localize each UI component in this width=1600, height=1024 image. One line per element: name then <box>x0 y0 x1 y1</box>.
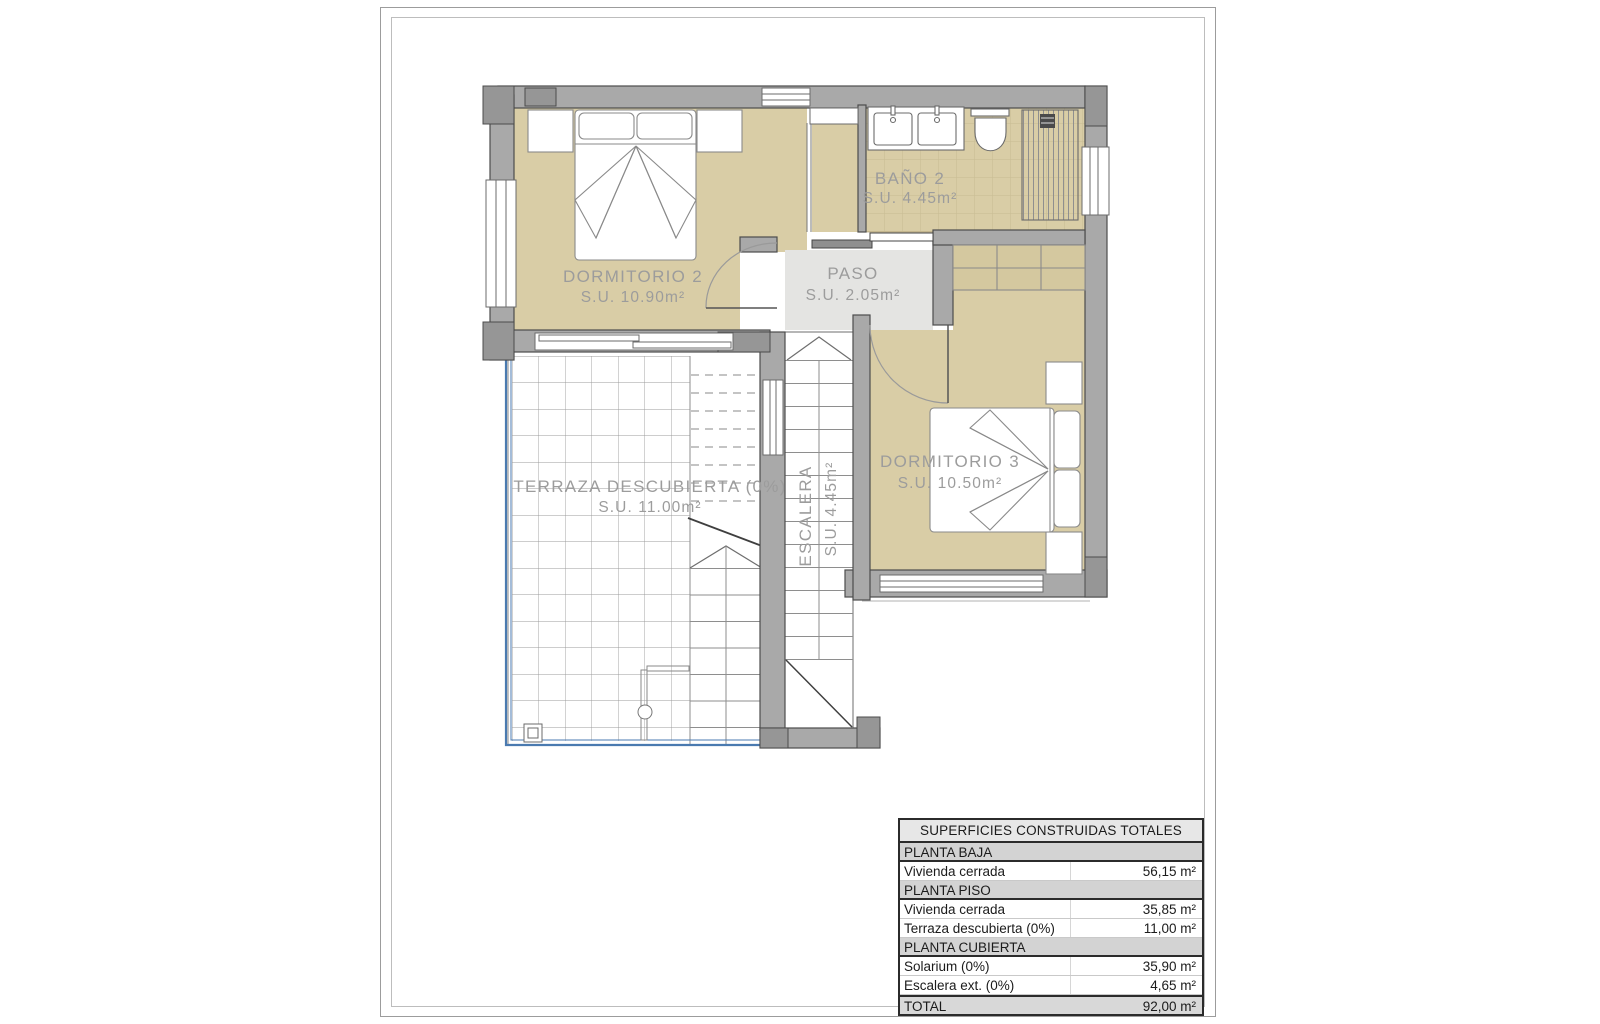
area-bano2: S.U. 4.45m² <box>863 190 958 207</box>
window-dorm2-left <box>486 180 516 307</box>
nightstand-d3-top <box>1046 362 1082 404</box>
row-label: Escalera ext. (0%) <box>900 976 1071 994</box>
section-label: PLANTA PISO <box>904 881 991 898</box>
area-terraza: S.U. 11.00m² <box>598 499 701 516</box>
wall-paso-right <box>933 237 953 325</box>
table-row: Solarium (0%) 35,90 m² <box>900 957 1202 976</box>
shower-drain <box>1040 114 1055 128</box>
row-value: 56,15 m² <box>1071 862 1202 880</box>
sliding-door-bath-leaf1 <box>812 240 872 248</box>
window-stair-left <box>763 380 783 455</box>
floor-plan-drawing: DORMITORIO 2 S.U. 10.90m² BAÑO 2 S.U. 4.… <box>0 0 1600 1024</box>
pilaster-stair-bottom <box>760 728 788 748</box>
label-dormitorio2: DORMITORIO 2 <box>563 267 703 286</box>
pilaster-bottom-right <box>1085 557 1107 597</box>
area-dormitorio2: S.U. 10.90m² <box>581 289 686 306</box>
label-dormitorio3: DORMITORIO 3 <box>880 452 1020 471</box>
nightstand-d2-left <box>528 110 573 152</box>
row-label: Vivienda cerrada <box>900 862 1071 880</box>
pillow-d3-bottom <box>1054 470 1080 527</box>
terrace-drain <box>638 705 652 719</box>
nightstand-d3-bottom <box>1046 532 1082 574</box>
table-row: Vivienda cerrada 56,15 m² <box>900 862 1202 881</box>
row-label: Vivienda cerrada <box>900 900 1071 918</box>
table-row-section: PLANTA BAJA <box>900 843 1202 862</box>
sliding-door-bath-leaf2 <box>870 233 933 241</box>
areas-table: SUPERFICIES CONSTRUIDAS TOTALES PLANTA B… <box>898 818 1204 1016</box>
label-bano2: BAÑO 2 <box>875 169 945 188</box>
row-value: 35,85 m² <box>1071 900 1202 918</box>
window-bath-right <box>1082 147 1109 215</box>
table-row: Vivienda cerrada 35,85 m² <box>900 900 1202 919</box>
section-label: PLANTA CUBIERTA <box>904 938 1026 955</box>
total-value: 92,00 m² <box>1070 997 1202 1014</box>
screenshot: DORMITORIO 2 S.U. 10.90m² BAÑO 2 S.U. 4.… <box>0 0 1600 1024</box>
faucet-right <box>935 106 939 115</box>
area-paso: S.U. 2.05m² <box>806 287 901 304</box>
area-dormitorio3: S.U. 10.50m² <box>898 475 1003 492</box>
areas-table-title: SUPERFICIES CONSTRUIDAS TOTALES <box>900 820 1202 843</box>
total-label: TOTAL <box>900 997 1070 1014</box>
wall-bath-left-thin <box>858 105 866 232</box>
table-row-total: TOTAL 92,00 m² <box>900 995 1202 1014</box>
table-row-section: PLANTA CUBIERTA <box>900 938 1202 957</box>
section-label: PLANTA BAJA <box>904 843 992 860</box>
table-row-section: PLANTA PISO <box>900 881 1202 900</box>
row-label: Solarium (0%) <box>900 957 1071 975</box>
row-value: 4,65 m² <box>1071 976 1202 994</box>
cabinet <box>810 108 858 124</box>
label-paso: PASO <box>827 264 878 283</box>
drain-sink-right <box>935 118 940 123</box>
table-row: Terraza descubierta (0%) 11,00 m² <box>900 919 1202 938</box>
window-top-wall <box>762 88 810 106</box>
label-terraza: TERRAZA DESCUBIERTA (0%) <box>513 477 786 496</box>
pilaster-stair-corner <box>857 717 880 748</box>
pillow-d2-left <box>579 113 634 139</box>
wall-stair-right <box>853 315 870 600</box>
stair-landing <box>740 252 785 335</box>
sliding-door-terrace-leaf2 <box>633 342 731 348</box>
pillow-d2-right <box>637 113 692 139</box>
pilaster-top-right <box>1085 86 1107 126</box>
row-value: 35,90 m² <box>1071 957 1202 975</box>
toilet-cistern <box>971 109 1009 116</box>
terraza-tile-grid <box>512 356 690 741</box>
label-escalera: ESCALERA <box>796 465 815 566</box>
wall-bath-dorm3 <box>933 230 1085 245</box>
corner-drain-box <box>524 724 542 742</box>
row-value: 11,00 m² <box>1071 919 1202 937</box>
pilaster-top-bump <box>525 88 556 106</box>
row-label: Terraza descubierta (0%) <box>900 919 1071 937</box>
pillow-d3-top <box>1054 411 1080 468</box>
table-row: Escalera ext. (0%) 4,65 m² <box>900 976 1202 995</box>
sliding-door-terrace-leaf1 <box>539 335 639 341</box>
faucet-left <box>891 106 895 115</box>
window-dorm3-bottom <box>880 575 1043 592</box>
drain-sink-left <box>891 118 896 123</box>
pilaster-mid-left <box>483 322 514 360</box>
nightstand-d2-right <box>697 110 742 152</box>
toilet-bowl <box>975 118 1006 151</box>
pilaster-top-left <box>483 86 514 124</box>
area-escalera: S.U. 4.45m² <box>823 462 840 557</box>
